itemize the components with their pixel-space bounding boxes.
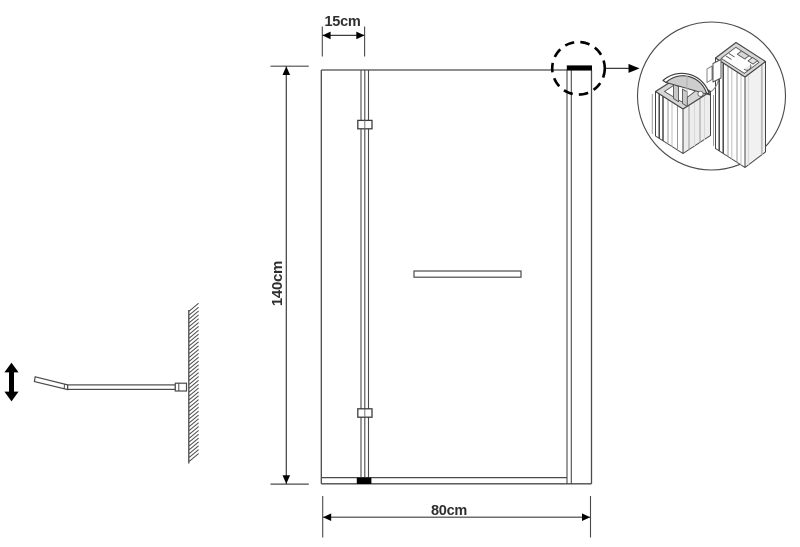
svg-text:140cm: 140cm — [269, 261, 286, 306]
svg-text:15cm: 15cm — [325, 14, 361, 30]
